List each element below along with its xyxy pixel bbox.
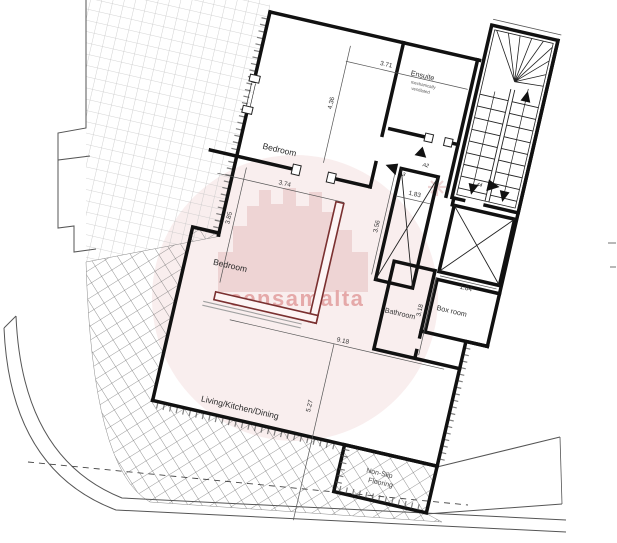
dim-bed1-depth: 4.36: [327, 96, 337, 110]
room-label-box-room: Box room: [436, 303, 468, 319]
floorplan-page: sensamalta: [0, 0, 617, 543]
marker-a2-label: A2: [421, 162, 430, 170]
marker-44-label: 44: [476, 182, 483, 189]
dim-bed1-width: 3.71: [379, 60, 393, 70]
marker-a3-triangle-icon: [384, 161, 398, 175]
marker-a2-triangle-icon: [415, 145, 429, 157]
room-label-bedroom-1: Bedroom: [262, 141, 298, 159]
dim-lift-width: 1.83: [408, 190, 422, 200]
floorplan-canvas: sensamalta: [0, 0, 617, 543]
page-edge-ticks: [608, 243, 616, 267]
dim-shaft-width: 1.84: [459, 284, 473, 294]
